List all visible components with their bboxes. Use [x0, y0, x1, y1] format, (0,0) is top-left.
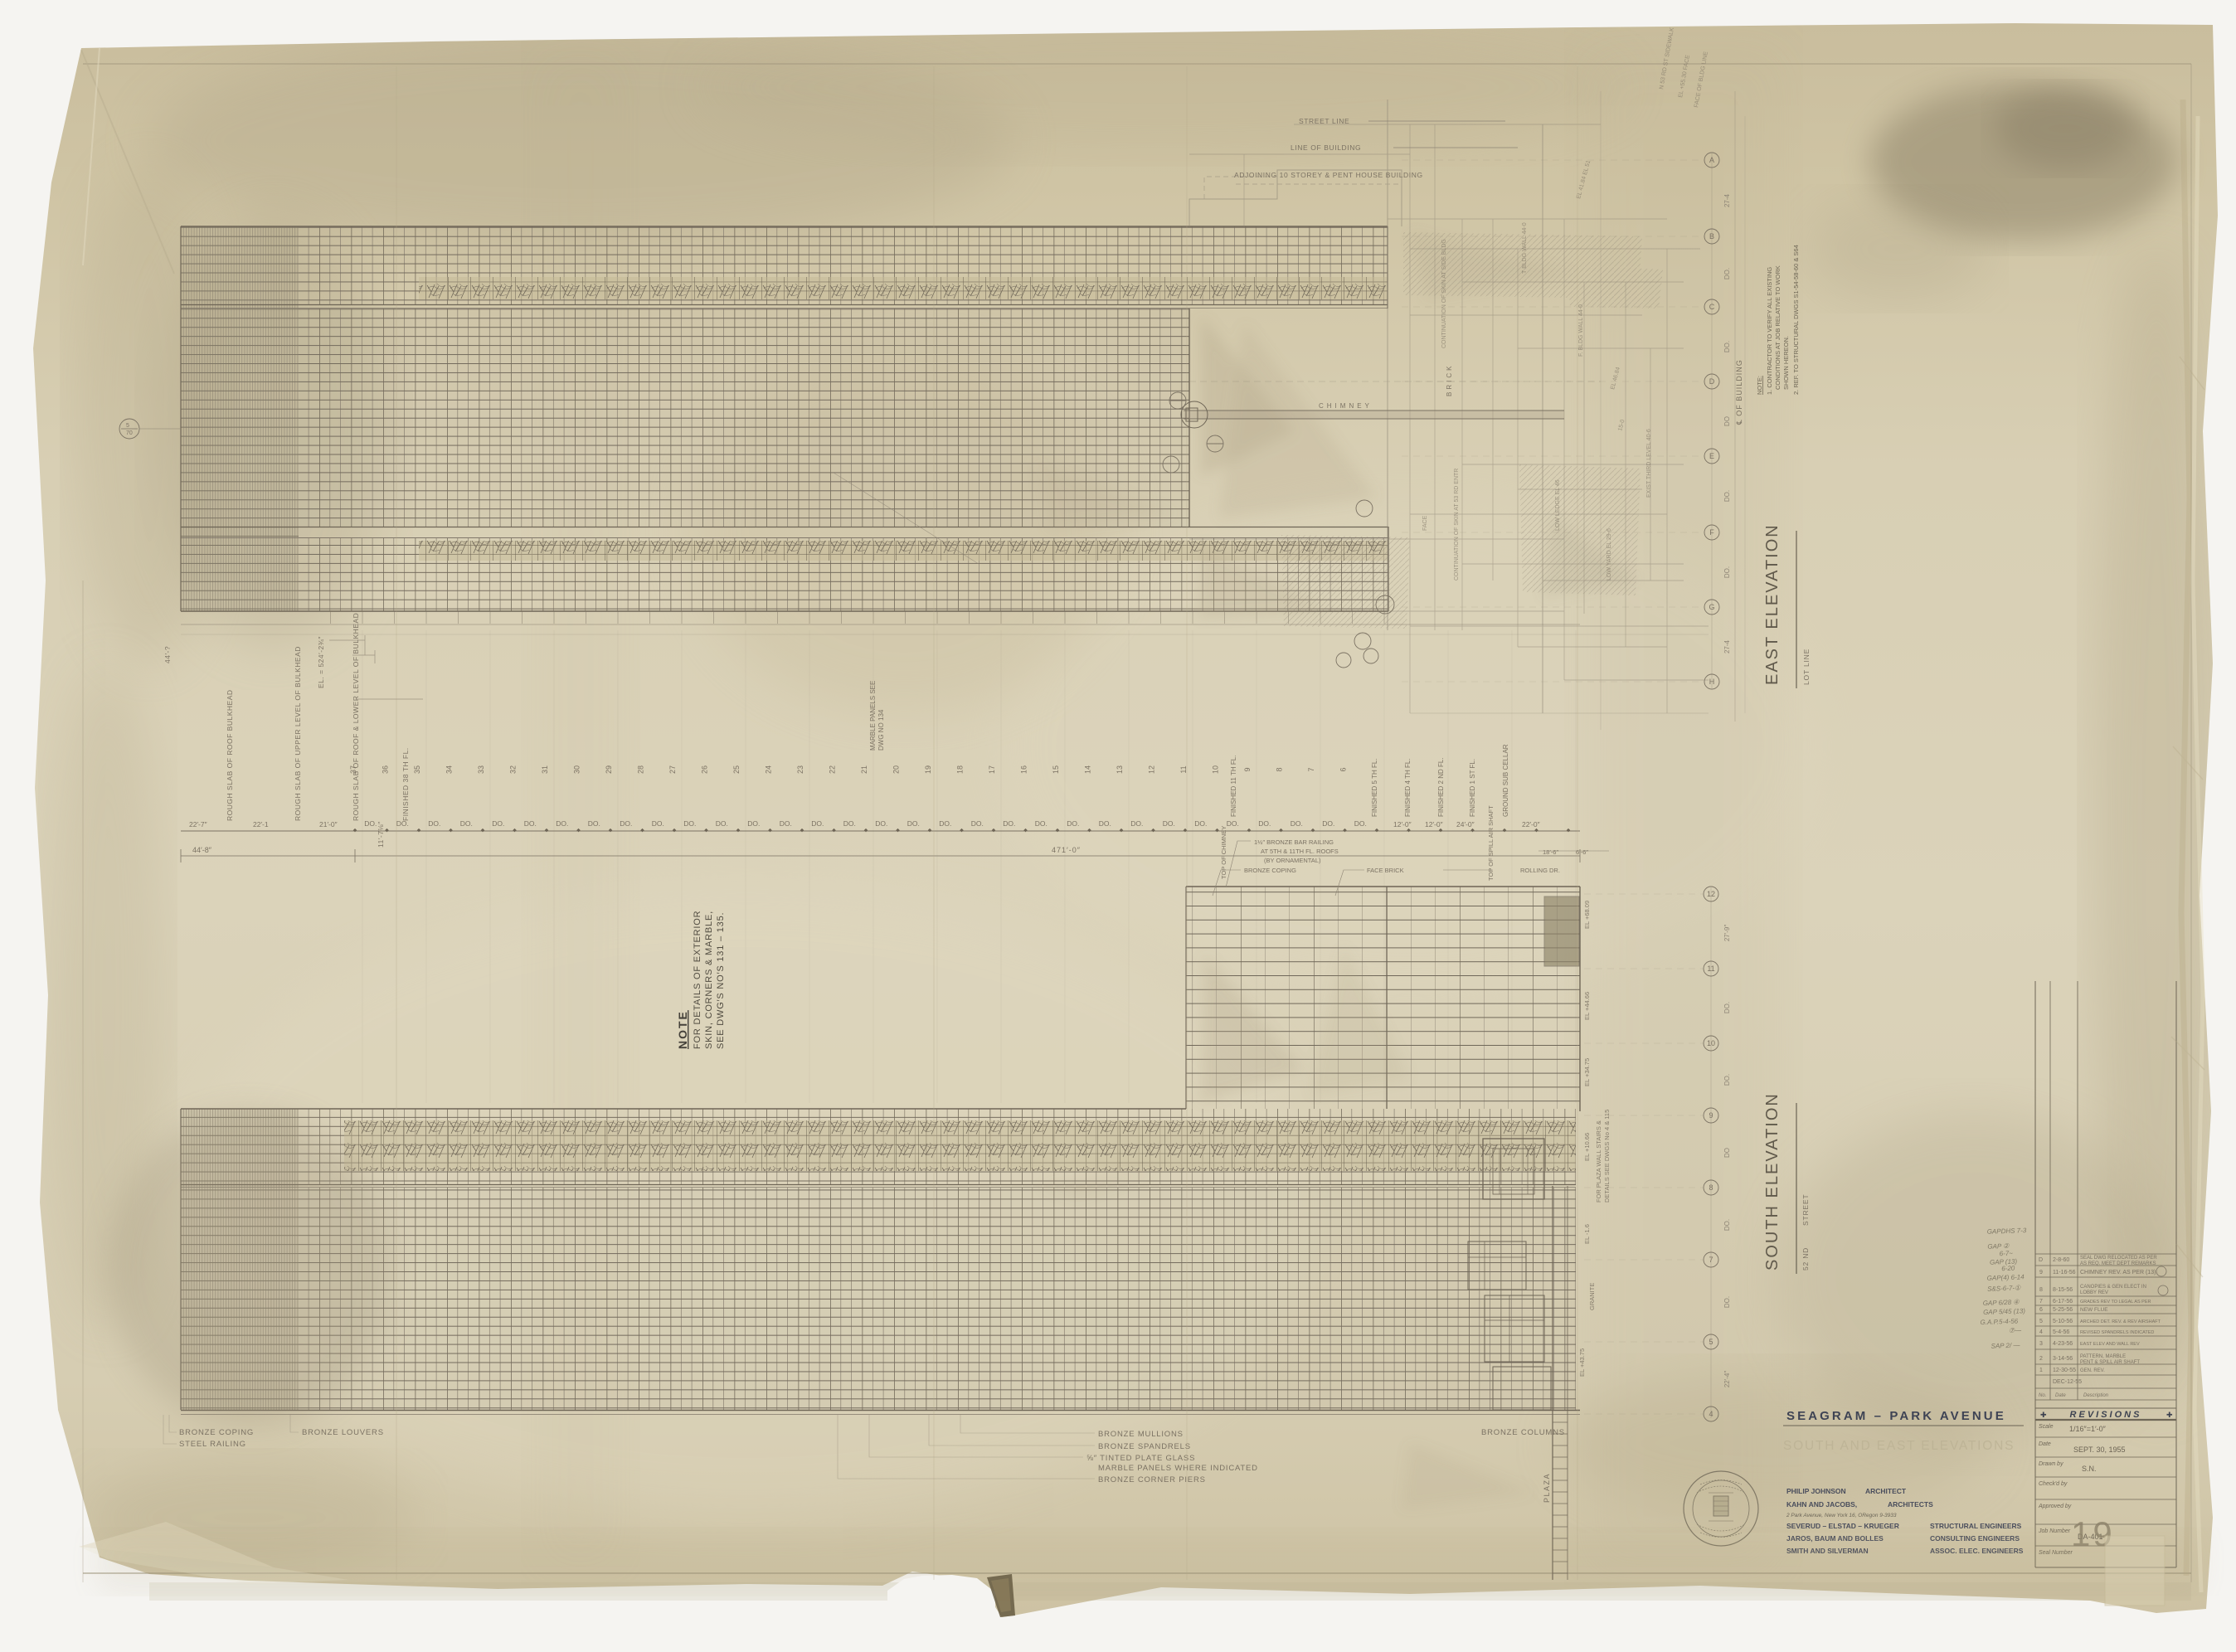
svg-text:BRICK: BRICK: [1446, 364, 1453, 396]
svg-text:DEC-12-55: DEC-12-55: [2053, 1379, 2082, 1385]
svg-text:21′-0″: 21′-0″: [319, 820, 338, 828]
svg-text:SOUTH ELEVATION: SOUTH ELEVATION: [1763, 1092, 1782, 1271]
svg-text:52 ND: 52 ND: [1801, 1247, 1810, 1271]
svg-text:27-4: 27-4: [1723, 193, 1731, 207]
svg-text:5: 5: [1709, 1338, 1713, 1346]
svg-text:ADJOINING 10 STOREY & PENT: ADJOINING 10 STOREY & PENT HOUSE BUILDIN…: [1234, 171, 1423, 179]
svg-text:AS REQ. MEET DEPT REMARKS: AS REQ. MEET DEPT REMARKS: [2080, 1261, 2156, 1266]
svg-text:DO.: DO.: [1723, 566, 1731, 578]
svg-text:⅝″ TINTED PLATE GLASS: ⅝″ TINTED PLATE GLASS: [1086, 1454, 1195, 1463]
svg-text:DO.: DO.: [1194, 819, 1207, 828]
svg-text:DO: DO: [1723, 416, 1731, 426]
svg-text:BRONZE SPANDRELS: BRONZE SPANDRELS: [1098, 1442, 1191, 1451]
svg-text:G.A.P.5-4-56: G.A.P.5-4-56: [1980, 1318, 2018, 1327]
svg-text:9: 9: [2039, 1270, 2043, 1275]
svg-text:PLAZA: PLAZA: [1543, 1473, 1551, 1503]
svg-text:ARCHITECT: ARCHITECT: [1865, 1487, 1907, 1495]
svg-text:12: 12: [1707, 890, 1715, 898]
svg-text:1/16″=1′-0″: 1/16″=1′-0″: [2069, 1425, 2107, 1433]
svg-text:31: 31: [541, 765, 549, 774]
svg-text:ROLLING DR.: ROLLING DR.: [1520, 867, 1560, 874]
svg-text:B: B: [1709, 232, 1714, 241]
svg-text:471′-0″: 471′-0″: [1052, 846, 1081, 854]
svg-text:(BY ORNAMENTAL): (BY ORNAMENTAL): [1264, 857, 1321, 864]
svg-text:℄ OF BUILDING: ℄ OF BUILDING: [1735, 359, 1743, 425]
svg-text:FINISHED 1 ST FL.: FINISHED 1 ST FL.: [1469, 759, 1476, 817]
svg-text:No.: No.: [2039, 1393, 2046, 1398]
svg-text:9: 9: [1243, 767, 1252, 771]
svg-text:FACE: FACE: [1422, 515, 1428, 531]
svg-text:FOR PLAZA WALL STAIRS &: FOR PLAZA WALL STAIRS &: [1595, 1120, 1602, 1203]
svg-text:1. CONTRACTOR TO VERIFY ALL EX: 1. CONTRACTOR TO VERIFY ALL EXISTING: [1766, 267, 1773, 395]
svg-text:D: D: [2039, 1257, 2043, 1263]
svg-text:SEVERUD – ELSTAD – KRUEGER: SEVERUD – ELSTAD – KRUEGER: [1786, 1522, 1899, 1530]
svg-text:3: 3: [2039, 1341, 2043, 1347]
svg-text:DO.: DO.: [747, 819, 760, 828]
svg-text:C: C: [1709, 303, 1715, 311]
svg-text:6: 6: [1339, 767, 1348, 771]
svg-text:F: F: [1709, 528, 1714, 537]
svg-text:DO.: DO.: [428, 819, 440, 828]
svg-text:EL +34.75: EL +34.75: [1583, 1058, 1591, 1086]
svg-text:37: 37: [349, 765, 357, 774]
svg-text:27′-9″: 27′-9″: [1723, 925, 1731, 942]
svg-text:DO: DO: [1723, 1148, 1731, 1158]
svg-text:LOW LEDGE EL 46: LOW LEDGE EL 46: [1555, 479, 1561, 531]
svg-text:Check'd by: Check'd by: [2039, 1481, 2068, 1487]
svg-text:GAP(4) 6-14: GAP(4) 6-14: [1987, 1273, 2025, 1282]
svg-text:Approved by: Approved by: [2038, 1504, 2072, 1509]
svg-text:18′-6″: 18′-6″: [1543, 848, 1558, 856]
svg-text:BRONZE COLUMNS: BRONZE COLUMNS: [1481, 1428, 1565, 1437]
svg-text:EAST ELEVATION: EAST ELEVATION: [1763, 523, 1782, 685]
svg-text:FINISHED 5 TH FL.: FINISHED 5 TH FL.: [1371, 758, 1378, 817]
svg-text:GAP 5/45 (13): GAP 5/45 (13): [1983, 1307, 2025, 1316]
svg-text:✚: ✚: [2040, 1411, 2047, 1419]
svg-text:8: 8: [1276, 767, 1284, 771]
svg-text:✚: ✚: [2166, 1411, 2173, 1419]
svg-text:FINISHED 38 TH FL.: FINISHED 38 TH FL.: [401, 747, 410, 821]
svg-text:15: 15: [1052, 765, 1060, 774]
svg-text:EL +44.66: EL +44.66: [1583, 992, 1591, 1020]
svg-text:DO.: DO.: [1723, 490, 1731, 502]
svg-text:BRONZE LOUVERS: BRONZE LOUVERS: [302, 1428, 384, 1437]
svg-text:36: 36: [382, 765, 390, 774]
svg-text:DO.: DO.: [907, 819, 920, 828]
svg-text:5-10-56: 5-10-56: [2053, 1319, 2073, 1324]
svg-text:LOBBY REV: LOBBY REV: [2080, 1290, 2108, 1295]
svg-text:1½″ BRONZE BAR RAILING: 1½″ BRONZE BAR RAILING: [1254, 838, 1334, 846]
svg-text:DO.: DO.: [364, 819, 377, 828]
svg-text:2: 2: [2039, 1356, 2043, 1362]
svg-text:CHIMNEY REV. AS PER (13): CHIMNEY REV. AS PER (13): [2080, 1270, 2156, 1275]
svg-text:Description: Description: [2083, 1393, 2109, 1398]
svg-text:ARCHITECTS: ARCHITECTS: [1888, 1500, 1933, 1509]
svg-text:DO.: DO.: [1723, 1219, 1731, 1231]
svg-text:⑦—: ⑦—: [2009, 1326, 2022, 1334]
svg-text:24: 24: [765, 765, 773, 774]
svg-text:DO.: DO.: [1130, 819, 1143, 828]
svg-text:TOP OF CHIMNEY: TOP OF CHIMNEY: [1220, 826, 1227, 879]
svg-text:GAP 6/28 ④: GAP 6/28 ④: [1983, 1298, 2020, 1307]
svg-text:REVISIONS: REVISIONS: [2070, 1410, 2142, 1420]
svg-text:6-17-56: 6-17-56: [2053, 1299, 2073, 1305]
svg-text:30: 30: [573, 765, 581, 774]
svg-text:3-14-56: 3-14-56: [2053, 1356, 2073, 1362]
svg-text:STRUCTURAL ENGINEERS: STRUCTURAL ENGINEERS: [1930, 1522, 2022, 1530]
svg-text:BRONZE COPING: BRONZE COPING: [1244, 867, 1296, 874]
svg-text:DO.: DO.: [1163, 819, 1175, 828]
svg-text:Scale: Scale: [2039, 1424, 2054, 1430]
svg-text:EL +10.66: EL +10.66: [1583, 1133, 1591, 1161]
svg-text:FACE BRICK: FACE BRICK: [1367, 867, 1404, 874]
svg-text:12-30-55: 12-30-55: [2053, 1368, 2076, 1373]
svg-text:35: 35: [413, 765, 421, 774]
svg-text:44′-8″: 44′-8″: [192, 846, 212, 854]
svg-text:ROUGH SLAB OF ROOF BULKHEAD: ROUGH SLAB OF ROOF BULKHEAD: [226, 690, 234, 822]
svg-text:DO.: DO.: [1723, 1296, 1731, 1308]
svg-text:DO.: DO.: [396, 819, 409, 828]
svg-text:12′-0″: 12′-0″: [1393, 820, 1412, 828]
svg-text:DO.: DO.: [875, 819, 887, 828]
svg-text:10: 10: [1212, 765, 1220, 774]
svg-text:SEAGRAM – PARK AVENUE: SEAGRAM – PARK AVENUE: [1786, 1409, 2006, 1423]
svg-text:13: 13: [1116, 765, 1124, 774]
svg-text:STREET LINE: STREET LINE: [1299, 117, 1349, 125]
svg-text:Date: Date: [2039, 1441, 2051, 1447]
svg-text:8: 8: [1709, 1183, 1713, 1192]
svg-text:22: 22: [829, 765, 837, 774]
svg-text:33: 33: [477, 765, 485, 774]
svg-text:7: 7: [1307, 767, 1315, 771]
svg-text:DO.: DO.: [1723, 1074, 1731, 1086]
svg-text:H: H: [1709, 678, 1715, 686]
svg-text:18: 18: [956, 765, 965, 774]
svg-text:6: 6: [2039, 1307, 2043, 1313]
svg-text:11-16-56: 11-16-56: [2053, 1270, 2076, 1275]
svg-text:17: 17: [988, 765, 996, 774]
svg-text:22′-0″: 22′-0″: [1522, 820, 1540, 828]
svg-text:DO.: DO.: [492, 819, 504, 828]
svg-text:NOTE:: NOTE:: [1756, 376, 1763, 395]
svg-text:MARBLE PANELS WHERE INDICAT: MARBLE PANELS WHERE INDICATED: [1098, 1464, 1258, 1473]
svg-text:22′-7″: 22′-7″: [189, 820, 207, 828]
svg-text:4-23-56: 4-23-56: [2053, 1341, 2073, 1347]
svg-text:SOUTH AND EAST ELEVATIONS: SOUTH AND EAST ELEVATIONS: [1783, 1439, 2015, 1453]
svg-text:GRADES REV TO LEGAL AS PER: GRADES REV TO LEGAL AS PER: [2080, 1300, 2151, 1305]
svg-text:20: 20: [892, 765, 901, 774]
svg-text:PATTERN, MARBLE: PATTERN, MARBLE: [2080, 1354, 2126, 1359]
svg-text:DO.: DO.: [716, 819, 728, 828]
svg-text:ARCHED DET. REV. & REV AIRSHAF: ARCHED DET. REV. & REV AIRSHAFT: [2080, 1319, 2161, 1324]
svg-text:PENT & SPILL AIR SHAFT: PENT & SPILL AIR SHAFT: [2080, 1360, 2140, 1365]
svg-text:2 Park Avenue, New York 16, OR: 2 Park Avenue, New York 16, ORegon 9-393…: [1786, 1513, 1897, 1518]
svg-text:NEW FLUE: NEW FLUE: [2080, 1307, 2108, 1313]
svg-text:GEN. REV.: GEN. REV.: [2080, 1368, 2105, 1373]
svg-text:FINISHED 11 TH FL.: FINISHED 11 TH FL.: [1230, 756, 1237, 817]
svg-text:S&S-6-7-①: S&S-6-7-①: [1987, 1284, 2021, 1292]
svg-text:FINISHED 2 ND FL.: FINISHED 2 ND FL.: [1437, 757, 1445, 817]
svg-text:SEE DWG′S NO′S 131 – 135.: SEE DWG′S NO′S 131 – 135.: [716, 912, 726, 1049]
svg-text:44′-?: 44′-?: [163, 646, 172, 663]
svg-text:LOW YARD EL 29-6: LOW YARD EL 29-6: [1607, 528, 1612, 581]
svg-text:5: 5: [126, 423, 129, 429]
svg-text:8: 8: [2039, 1287, 2043, 1293]
svg-text:DO.: DO.: [524, 819, 537, 828]
svg-text:GAPDHS 7-3: GAPDHS 7-3: [1987, 1227, 2027, 1236]
svg-text:11: 11: [1707, 964, 1714, 973]
svg-text:DO.: DO.: [843, 819, 856, 828]
svg-text:12: 12: [1148, 765, 1156, 774]
svg-text:DO.: DO.: [588, 819, 600, 828]
svg-text:29: 29: [605, 765, 613, 774]
svg-text:16: 16: [1020, 765, 1028, 774]
svg-text:REVISED SPANDRELS INDICATED: REVISED SPANDRELS INDICATED: [2080, 1330, 2154, 1335]
svg-text:SAP 2/ —: SAP 2/ —: [1991, 1341, 2020, 1349]
svg-text:CONDITIONS AT JOB RELATIVE TO: CONDITIONS AT JOB RELATIVE TO WORK: [1774, 265, 1782, 390]
svg-text:BRONZE COPING: BRONZE COPING: [179, 1428, 254, 1437]
svg-text:CANOPIES & GEN ELECT IN: CANOPIES & GEN ELECT IN: [2080, 1285, 2146, 1290]
svg-text:7: 7: [2039, 1299, 2043, 1305]
svg-text:DO.: DO.: [683, 819, 696, 828]
svg-text:PHILIP JOHNSON: PHILIP JOHNSON: [1786, 1487, 1846, 1495]
svg-text:DO.: DO.: [811, 819, 824, 828]
svg-text:G: G: [1709, 603, 1714, 611]
svg-text:27: 27: [668, 765, 677, 774]
svg-text:8-15-56: 8-15-56: [2053, 1287, 2073, 1293]
svg-text:6-7~: 6-7~: [2000, 1250, 2014, 1258]
svg-text:ROUGH SLAB OF UPPER LEVEL OF B: ROUGH SLAB OF UPPER LEVEL OF BULKHEAD: [294, 646, 302, 821]
svg-text:9: 9: [1709, 1111, 1713, 1120]
svg-text:SHOWN HEREON.: SHOWN HEREON.: [1782, 336, 1790, 390]
svg-text:EAST ELEV AND WALL REV: EAST ELEV AND WALL REV: [2080, 1342, 2140, 1347]
svg-text:MARBLE PANELS SEE: MARBLE PANELS SEE: [869, 681, 877, 751]
svg-text:DO.: DO.: [460, 819, 473, 828]
svg-text:DO.: DO.: [939, 819, 951, 828]
svg-text:LOT LINE: LOT LINE: [1802, 649, 1811, 685]
svg-text:32: 32: [509, 765, 518, 774]
svg-text:SKIN, CORNERS & MARBLE,: SKIN, CORNERS & MARBLE,: [704, 911, 714, 1049]
svg-text:CHIMNEY: CHIMNEY: [1319, 402, 1373, 410]
svg-text:DO.: DO.: [1723, 341, 1731, 352]
svg-text:Date: Date: [2055, 1393, 2066, 1398]
svg-text:DO.: DO.: [1291, 819, 1303, 828]
svg-text:28: 28: [637, 765, 645, 774]
svg-text:KAHN AND JACOBS,: KAHN AND JACOBS,: [1786, 1500, 1857, 1509]
svg-text:11′-7⅛″: 11′-7⅛″: [377, 821, 385, 848]
svg-text:EL +43.75: EL +43.75: [1578, 1348, 1586, 1377]
svg-text:DO.: DO.: [556, 819, 568, 828]
svg-text:DO.: DO.: [1067, 819, 1079, 828]
svg-text:22′-1: 22′-1: [253, 820, 269, 828]
svg-text:DO.: DO.: [1354, 819, 1367, 828]
svg-text:LINE OF BUILDING: LINE OF BUILDING: [1291, 143, 1361, 152]
svg-text:FOR DETAILS OF EXTERIOR: FOR DETAILS OF EXTERIOR: [693, 911, 702, 1049]
svg-text:DO.: DO.: [1035, 819, 1048, 828]
svg-text:DO.: DO.: [1322, 819, 1334, 828]
svg-text:2-8-60: 2-8-60: [2053, 1257, 2069, 1263]
svg-text:SEPT. 30, 1955: SEPT. 30, 1955: [2073, 1445, 2126, 1454]
svg-text:EXIST THIRD LEVEL 40-6: EXIST THIRD LEVEL 40-6: [1646, 429, 1652, 498]
svg-text:1: 1: [2039, 1368, 2043, 1373]
svg-text:NOTE: NOTE: [676, 1010, 689, 1049]
svg-text:DWG NO 134: DWG NO 134: [877, 709, 885, 751]
svg-text:GRANITE: GRANITE: [1588, 1283, 1596, 1310]
svg-text:Drawn by: Drawn by: [2039, 1461, 2063, 1467]
svg-text:EL -1.6: EL -1.6: [1583, 1224, 1591, 1244]
svg-text:12′-0″: 12′-0″: [1425, 820, 1443, 828]
svg-text:F. BLDG WALL 44-0: F. BLDG WALL 44-0: [1578, 304, 1584, 357]
svg-text:D: D: [1709, 377, 1715, 386]
svg-text:S.N.: S.N.: [2082, 1465, 2097, 1473]
svg-text:CONTINUATION OF SKIN AT SIDE B: CONTINUATION OF SKIN AT SIDE BLDG: [1441, 239, 1447, 348]
svg-text:25: 25: [732, 765, 741, 774]
svg-text:DO.: DO.: [971, 819, 984, 828]
svg-text:DO.: DO.: [1227, 819, 1239, 828]
svg-text:6-20: 6-20: [2001, 1265, 2015, 1273]
svg-text:TOP OF SPILL AIR SHAFT: TOP OF SPILL AIR SHAFT: [1487, 805, 1495, 881]
svg-text:DO.: DO.: [1723, 1002, 1731, 1013]
svg-text:14: 14: [1084, 765, 1092, 774]
svg-text:DO.: DO.: [780, 819, 792, 828]
svg-text:EL +68.09: EL +68.09: [1583, 901, 1591, 929]
svg-text:FINISHED 4 TH FL.: FINISHED 4 TH FL.: [1404, 758, 1412, 817]
svg-text:21: 21: [860, 765, 868, 774]
svg-text:GROUND SUB CELLAR: GROUND SUB CELLAR: [1502, 744, 1509, 817]
svg-text:26: 26: [701, 765, 709, 774]
svg-text:5-25-56: 5-25-56: [2053, 1307, 2073, 1313]
svg-text:4: 4: [2039, 1329, 2043, 1335]
svg-text:22′-4″: 22′-4″: [1723, 1371, 1731, 1388]
svg-text:24′-0″: 24′-0″: [1456, 820, 1475, 828]
svg-text:DO.: DO.: [1099, 819, 1111, 828]
svg-text:5: 5: [2039, 1319, 2043, 1324]
svg-text:BRONZE MULLIONS: BRONZE MULLIONS: [1098, 1430, 1184, 1439]
svg-text:CONTINUATION OF SKIN AT 53 RD: CONTINUATION OF SKIN AT 53 RD ENTR: [1454, 469, 1460, 581]
svg-text:DO.: DO.: [1258, 819, 1271, 828]
svg-text:E: E: [1709, 452, 1714, 460]
svg-text:T BLDG WALL 44-0: T BLDG WALL 44-0: [1522, 222, 1528, 274]
svg-text:70: 70: [126, 430, 133, 436]
svg-text:10: 10: [1707, 1039, 1715, 1047]
svg-text:ROUGH SLAB OF ROOF & LOWER LEV: ROUGH SLAB OF ROOF & LOWER LEVEL OF BULK…: [352, 613, 360, 821]
svg-text:DO.: DO.: [1003, 819, 1015, 828]
svg-text:STEEL RAILING: STEEL RAILING: [179, 1440, 246, 1449]
svg-text:27-4: 27-4: [1723, 639, 1731, 654]
svg-text:34: 34: [445, 765, 454, 774]
svg-text:2. REF. TO STRUCTURAL DWGS S1-: 2. REF. TO STRUCTURAL DWGS S1-54-58-60 &…: [1792, 245, 1800, 395]
svg-text:BRONZE CORNER PIERS: BRONZE CORNER PIERS: [1098, 1475, 1206, 1484]
svg-text:7: 7: [1709, 1256, 1713, 1264]
svg-text:DO.: DO.: [620, 819, 632, 828]
svg-text:STREET: STREET: [1801, 1194, 1810, 1226]
svg-text:SEAL DWG RELOCATED AS PER: SEAL DWG RELOCATED AS PER: [2080, 1256, 2157, 1261]
svg-text:4: 4: [1709, 1410, 1713, 1418]
svg-text:DO.: DO.: [652, 819, 664, 828]
svg-text:DO.: DO.: [1723, 268, 1731, 279]
svg-text:A: A: [1709, 156, 1714, 164]
svg-text:23: 23: [796, 765, 804, 774]
svg-text:5-4-56: 5-4-56: [2053, 1329, 2069, 1335]
svg-text:DETAILS SEE DWGS No 4 & 115: DETAILS SEE DWGS No 4 & 115: [1603, 1110, 1611, 1203]
svg-text:AT 5TH & 11TH FL. ROOFS: AT 5TH & 11TH FL. ROOFS: [1261, 848, 1339, 855]
svg-text:19: 19: [924, 765, 932, 774]
svg-text:EL. = 524′-2¾″: EL. = 524′-2¾″: [317, 636, 325, 688]
